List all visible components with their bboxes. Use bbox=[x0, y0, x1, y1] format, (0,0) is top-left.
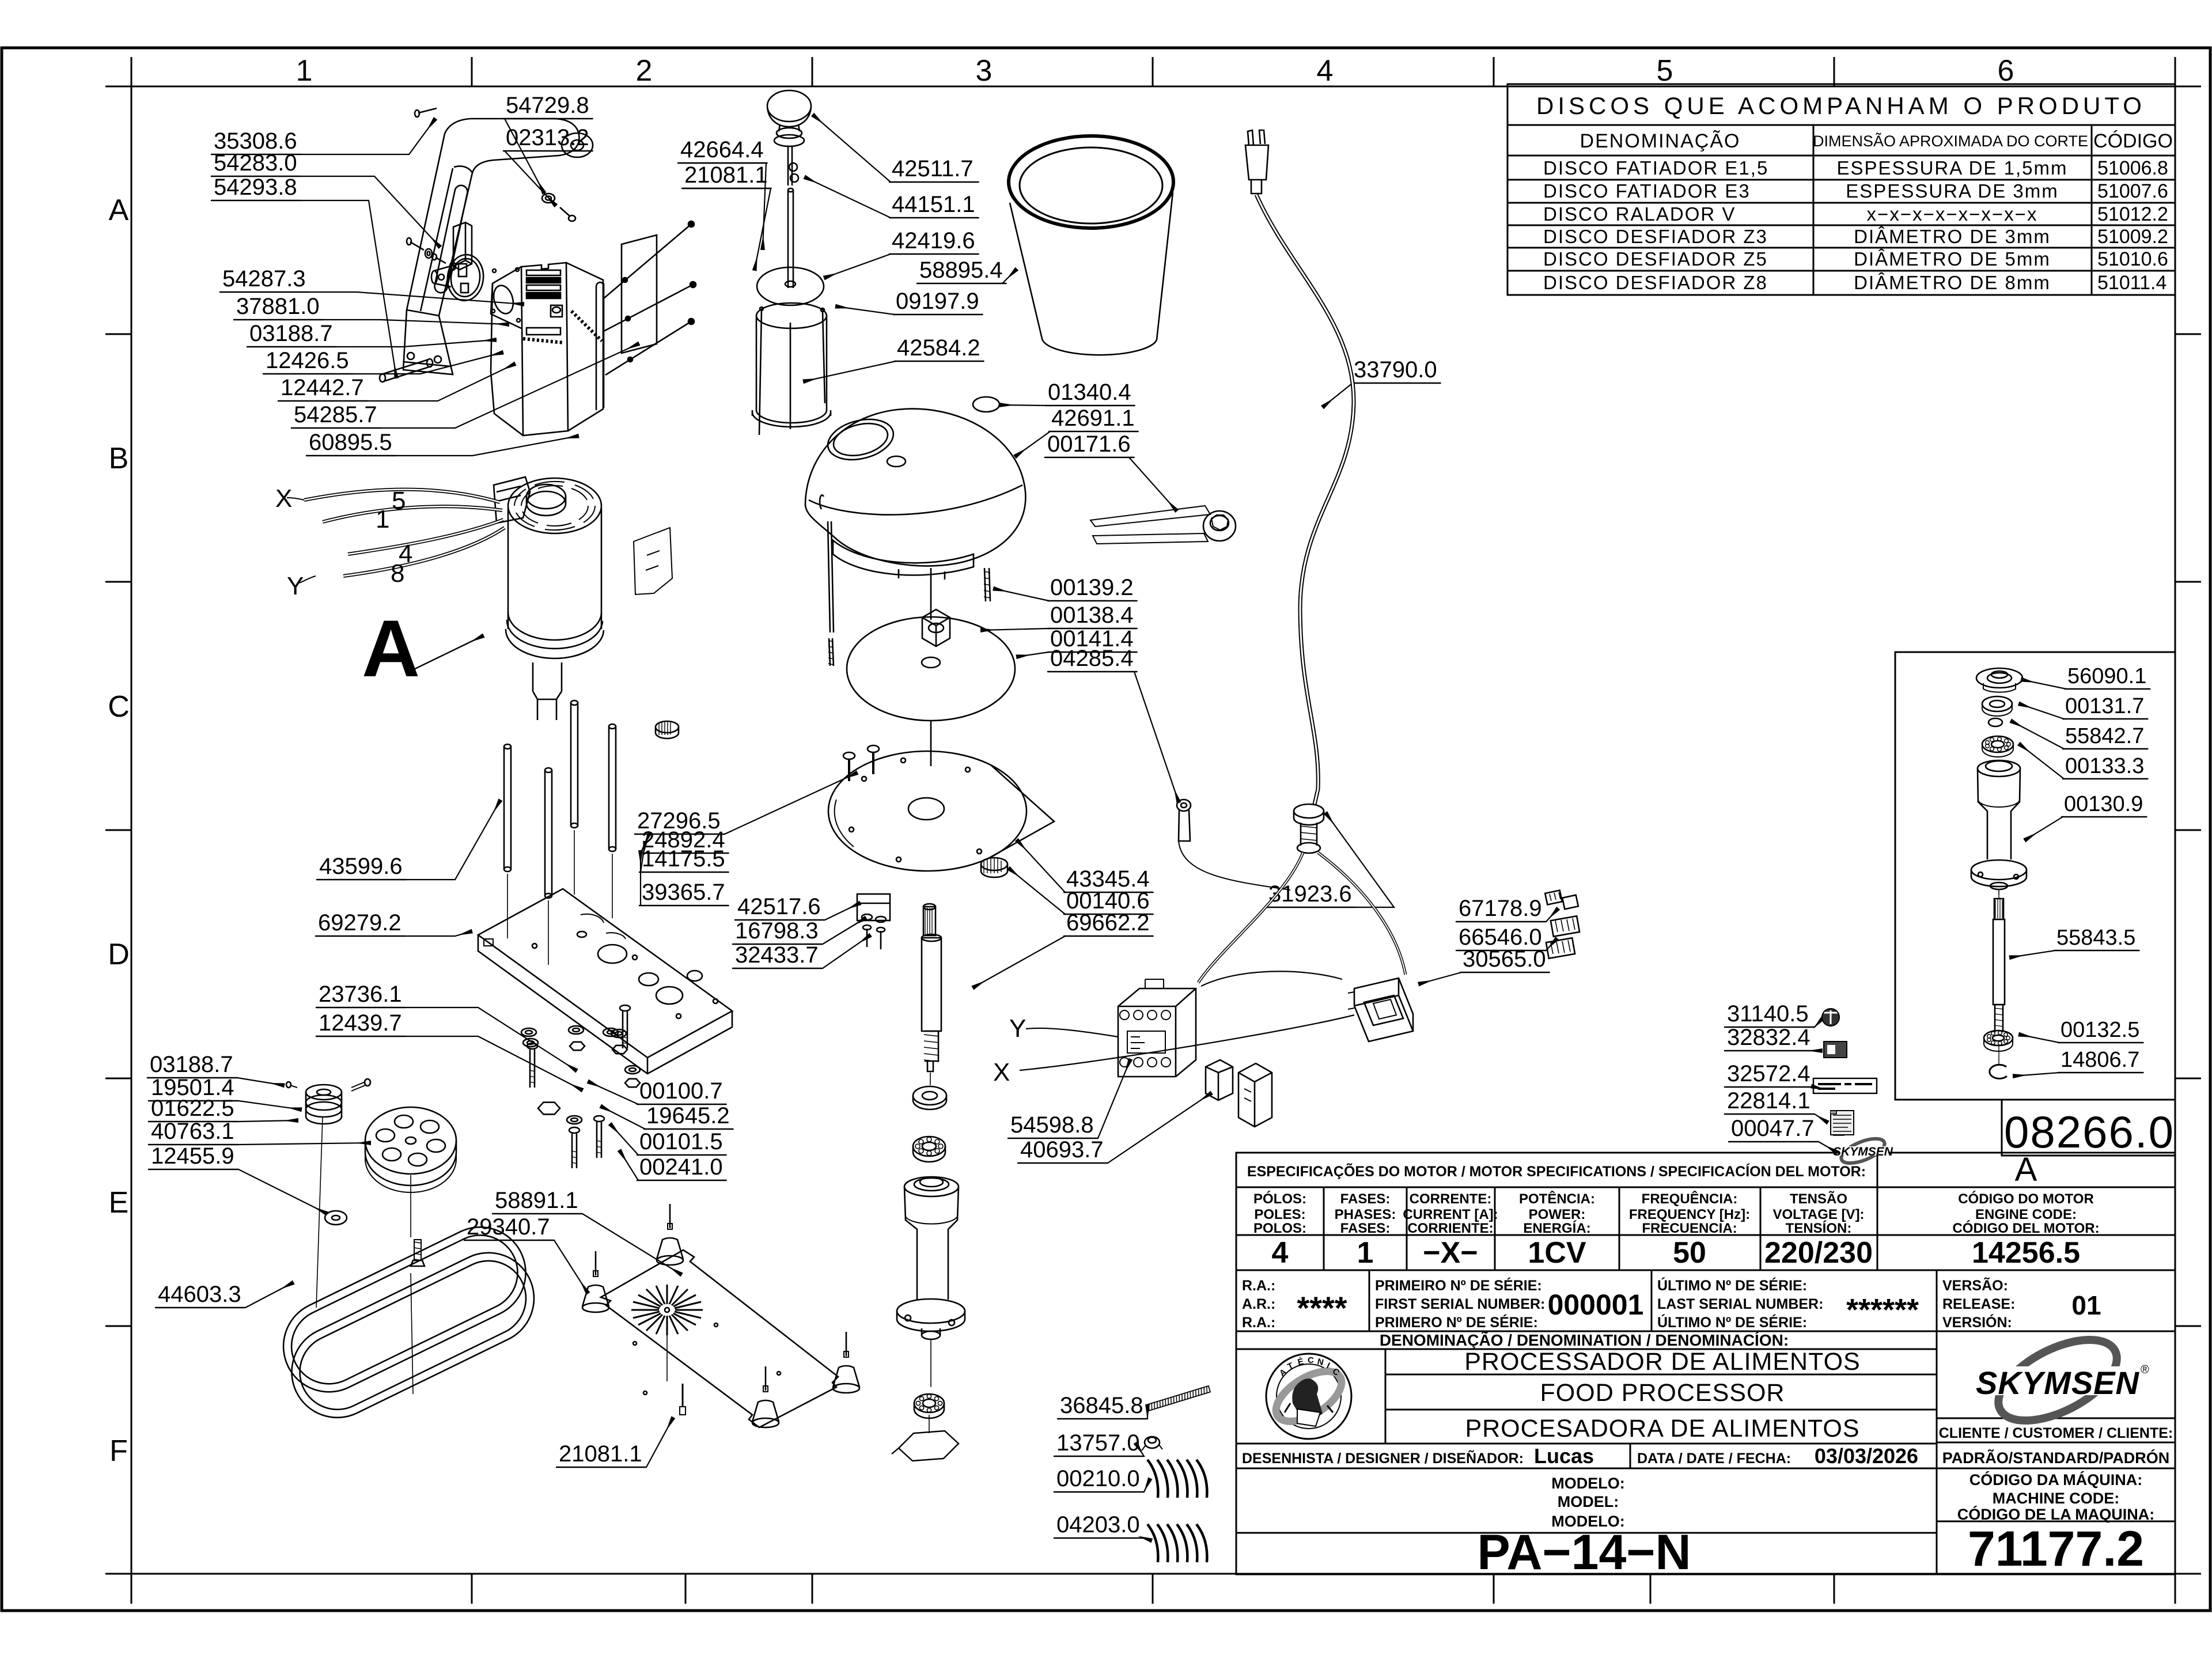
svg-text:FASES:: FASES: bbox=[1340, 1221, 1391, 1236]
svg-text:12455.9: 12455.9 bbox=[151, 1143, 234, 1169]
svg-text:14175.5: 14175.5 bbox=[642, 846, 725, 872]
svg-text:FRECUENCIA:: FRECUENCIA: bbox=[1642, 1221, 1737, 1236]
svg-text:51012.2: 51012.2 bbox=[2097, 203, 2168, 225]
svg-text:MODEL:: MODEL: bbox=[1558, 1493, 1619, 1510]
svg-text:F: F bbox=[109, 1434, 128, 1468]
svg-text:DIÂMETRO DE 8mm: DIÂMETRO DE 8mm bbox=[1854, 272, 2051, 293]
svg-text:56090.1: 56090.1 bbox=[2067, 664, 2146, 688]
svg-text:ESPESSURA DE 3mm: ESPESSURA DE 3mm bbox=[1846, 180, 2058, 202]
svg-text:Y: Y bbox=[287, 572, 304, 600]
svg-text:DISCO FATIADOR E1,5: DISCO FATIADOR E1,5 bbox=[1543, 157, 1768, 179]
svg-text:1: 1 bbox=[376, 505, 389, 533]
svg-text:55842.7: 55842.7 bbox=[2065, 724, 2144, 748]
svg-text:PROCESADORA DE ALIMENTOS: PROCESADORA DE ALIMENTOS bbox=[1465, 1415, 1859, 1442]
svg-text:01622.5: 01622.5 bbox=[151, 1096, 234, 1121]
svg-text:44603.3: 44603.3 bbox=[158, 1282, 241, 1307]
svg-text:69662.2: 69662.2 bbox=[1066, 910, 1150, 935]
svg-text:POWER:: POWER: bbox=[1529, 1207, 1586, 1222]
svg-text:DENOMINAÇÃO / DENOMINATION / D: DENOMINAÇÃO / DENOMINATION / DENOMINACÍO… bbox=[1380, 1331, 1789, 1349]
svg-text:ÚLTIMO Nº DE SÉRIE:: ÚLTIMO Nº DE SÉRIE: bbox=[1657, 1313, 1807, 1331]
svg-text:42419.6: 42419.6 bbox=[892, 228, 975, 253]
svg-text:40763.1: 40763.1 bbox=[151, 1119, 234, 1144]
svg-text:DESENHISTA / DESIGNER / DISEÑA: DESENHISTA / DESIGNER / DISEÑADOR: bbox=[1242, 1449, 1524, 1467]
svg-text:A: A bbox=[2015, 1151, 2037, 1188]
svg-text:POLOS:: POLOS: bbox=[1253, 1221, 1306, 1236]
svg-text:42511.7: 42511.7 bbox=[892, 156, 974, 181]
svg-text:12442.7: 12442.7 bbox=[281, 375, 364, 400]
svg-text:00101.5: 00101.5 bbox=[639, 1129, 723, 1154]
svg-text:33790.0: 33790.0 bbox=[1354, 357, 1437, 382]
svg-text:54729.8: 54729.8 bbox=[506, 93, 589, 118]
svg-text:54283.0: 54283.0 bbox=[214, 150, 297, 176]
svg-text:19645.2: 19645.2 bbox=[646, 1103, 730, 1128]
svg-text:SKYMSEN: SKYMSEN bbox=[1976, 1365, 2139, 1401]
svg-text:A.R.:: A.R.: bbox=[1242, 1296, 1275, 1312]
svg-text:12439.7: 12439.7 bbox=[319, 1010, 402, 1036]
svg-text:4: 4 bbox=[1272, 1236, 1289, 1270]
svg-text:5: 5 bbox=[392, 487, 406, 515]
svg-text:PRIMERO Nº DE SÉRIE:: PRIMERO Nº DE SÉRIE: bbox=[1375, 1314, 1538, 1331]
svg-text:12426.5: 12426.5 bbox=[266, 348, 349, 373]
svg-text:69279.2: 69279.2 bbox=[318, 910, 402, 935]
svg-text:51010.6: 51010.6 bbox=[2097, 248, 2168, 270]
svg-text:CÓDIGO DEL MOTOR:: CÓDIGO DEL MOTOR: bbox=[1952, 1220, 2099, 1236]
svg-text:32572.4: 32572.4 bbox=[1727, 1061, 1810, 1086]
svg-text:40693.7: 40693.7 bbox=[1020, 1137, 1104, 1162]
svg-text:44151.1: 44151.1 bbox=[892, 192, 975, 217]
svg-text:00138.4: 00138.4 bbox=[1050, 603, 1134, 628]
svg-text:ESPESSURA DE 1,5mm: ESPESSURA DE 1,5mm bbox=[1837, 157, 2068, 179]
svg-text:DIÂMETRO DE 5mm: DIÂMETRO DE 5mm bbox=[1854, 248, 2051, 270]
svg-text:00130.9: 00130.9 bbox=[2064, 792, 2143, 816]
svg-text:DISCO DESFIADOR Z8: DISCO DESFIADOR Z8 bbox=[1543, 272, 1768, 293]
svg-text:FASES:: FASES: bbox=[1340, 1191, 1391, 1207]
svg-text:FIRST SERIAL NUMBER:: FIRST SERIAL NUMBER: bbox=[1375, 1296, 1545, 1312]
svg-text:1CV: 1CV bbox=[1528, 1236, 1586, 1270]
svg-text:14806.7: 14806.7 bbox=[2061, 1048, 2139, 1072]
svg-text:71177.2: 71177.2 bbox=[1968, 1521, 2144, 1577]
svg-text:55843.5: 55843.5 bbox=[2056, 926, 2135, 950]
svg-text:42517.6: 42517.6 bbox=[737, 894, 821, 919]
svg-text:CÓDIGO: CÓDIGO bbox=[2093, 130, 2173, 152]
svg-text:LAST SERIAL NUMBER:: LAST SERIAL NUMBER: bbox=[1657, 1296, 1823, 1312]
svg-text:******: ****** bbox=[1846, 1293, 1919, 1327]
svg-text:B: B bbox=[109, 442, 129, 475]
svg-text:VERSÃO:: VERSÃO: bbox=[1942, 1277, 2008, 1294]
svg-text:DISCOS QUE ACOMPANHAM O PRODUT: DISCOS QUE ACOMPANHAM O PRODUTO bbox=[1536, 92, 2146, 119]
svg-text:39365.7: 39365.7 bbox=[642, 880, 725, 905]
svg-text:37881.0: 37881.0 bbox=[236, 294, 320, 319]
svg-text:TENSÍON:: TENSÍON: bbox=[1786, 1220, 1852, 1236]
svg-text:04285.4: 04285.4 bbox=[1050, 646, 1134, 671]
svg-text:CÓDIGO DE LA MAQUINA:: CÓDIGO DE LA MAQUINA: bbox=[1957, 1505, 2154, 1523]
svg-text:DIMENSÃO APROXIMADA DO CORTE: DIMENSÃO APROXIMADA DO CORTE bbox=[1813, 132, 2088, 150]
svg-text:50: 50 bbox=[1673, 1236, 1706, 1270]
svg-text:DIÂMETRO DE 3mm: DIÂMETRO DE 3mm bbox=[1854, 226, 2051, 247]
svg-text:03/03/2026: 03/03/2026 bbox=[1815, 1444, 1918, 1468]
svg-text:FREQUENCY [Hz]:: FREQUENCY [Hz]: bbox=[1629, 1207, 1750, 1222]
svg-text:8: 8 bbox=[391, 559, 404, 588]
svg-text:54285.7: 54285.7 bbox=[294, 402, 377, 427]
svg-text:03188.7: 03188.7 bbox=[249, 321, 333, 346]
svg-text:220/230: 220/230 bbox=[1764, 1236, 1873, 1270]
svg-text:POTÊNCIA:: POTÊNCIA: bbox=[1519, 1191, 1595, 1207]
svg-text:−X−: −X− bbox=[1423, 1236, 1478, 1270]
svg-text:A: A bbox=[109, 194, 129, 227]
svg-text:CURRENT [A]:: CURRENT [A]: bbox=[1403, 1207, 1498, 1222]
svg-text:ENGINE CODE:: ENGINE CODE: bbox=[1975, 1207, 2077, 1222]
svg-text:X: X bbox=[275, 484, 292, 513]
svg-text:CLIENTE / CUSTOMER / CLIENTE:: CLIENTE / CUSTOMER / CLIENTE: bbox=[1939, 1425, 2173, 1441]
svg-text:60895.5: 60895.5 bbox=[309, 430, 392, 455]
svg-text:43599.6: 43599.6 bbox=[319, 854, 403, 879]
svg-text:R.A.:: R.A.: bbox=[1242, 1278, 1275, 1294]
svg-text:E: E bbox=[109, 1186, 129, 1219]
svg-text:54287.3: 54287.3 bbox=[222, 266, 306, 291]
svg-text:CÓDIGO DO MOTOR: CÓDIGO DO MOTOR bbox=[1958, 1191, 2094, 1207]
svg-text:54293.8: 54293.8 bbox=[214, 175, 297, 200]
svg-text:67178.9: 67178.9 bbox=[1459, 896, 1542, 921]
svg-text:00132.5: 00132.5 bbox=[2061, 1018, 2139, 1042]
svg-text:PA−14−N: PA−14−N bbox=[1477, 1525, 1691, 1580]
svg-text:51006.8: 51006.8 bbox=[2097, 157, 2168, 179]
svg-text:36845.8: 36845.8 bbox=[1060, 1393, 1143, 1418]
svg-text:42664.4: 42664.4 bbox=[680, 137, 764, 162]
svg-text:®: ® bbox=[2141, 1363, 2149, 1376]
svg-text:PADRÃO/STANDARD/PADRÓN: PADRÃO/STANDARD/PADRÓN bbox=[1942, 1449, 2170, 1467]
svg-text:51011.4: 51011.4 bbox=[2097, 272, 2166, 294]
svg-text:00139.2: 00139.2 bbox=[1050, 575, 1134, 600]
svg-text:PÓLOS:: PÓLOS: bbox=[1253, 1191, 1306, 1207]
svg-text:FREQUÊNCIA:: FREQUÊNCIA: bbox=[1642, 1191, 1738, 1207]
svg-text:VERSIÓN:: VERSIÓN: bbox=[1942, 1313, 2012, 1331]
svg-text:x−x−x−x−x−x−x−x: x−x−x−x−x−x−x−x bbox=[1867, 203, 2038, 225]
svg-text:01: 01 bbox=[2071, 1290, 2101, 1320]
svg-text:23736.1: 23736.1 bbox=[319, 982, 402, 1007]
svg-text:1: 1 bbox=[1357, 1236, 1374, 1270]
svg-text:4: 4 bbox=[1317, 54, 1334, 88]
svg-text:POLES:: POLES: bbox=[1254, 1207, 1305, 1222]
svg-text:30565.0: 30565.0 bbox=[1463, 946, 1546, 972]
svg-text:09197.9: 09197.9 bbox=[896, 289, 979, 314]
svg-text:DISCO DESFIADOR Z3: DISCO DESFIADOR Z3 bbox=[1543, 226, 1768, 247]
svg-text:01340.4: 01340.4 bbox=[1048, 380, 1131, 405]
svg-text:42584.2: 42584.2 bbox=[897, 335, 980, 361]
svg-text:000001: 000001 bbox=[1548, 1289, 1644, 1321]
svg-text:16798.3: 16798.3 bbox=[735, 918, 819, 944]
svg-text:X: X bbox=[993, 1058, 1010, 1086]
svg-text:00100.7: 00100.7 bbox=[639, 1078, 723, 1104]
svg-text:FOOD PROCESSOR: FOOD PROCESSOR bbox=[1540, 1379, 1785, 1407]
svg-text:31923.6: 31923.6 bbox=[1268, 881, 1352, 907]
svg-text:PRIMEIRO Nº DE SÉRIE:: PRIMEIRO Nº DE SÉRIE: bbox=[1375, 1277, 1542, 1294]
svg-text:1: 1 bbox=[296, 54, 313, 88]
svg-text:DISCO DESFIADOR Z5: DISCO DESFIADOR Z5 bbox=[1543, 248, 1768, 270]
svg-text:03188.7: 03188.7 bbox=[150, 1052, 233, 1077]
svg-text:00133.3: 00133.3 bbox=[2065, 754, 2144, 778]
svg-text:DISCO RALADOR V: DISCO RALADOR V bbox=[1543, 203, 1736, 225]
svg-text:Y: Y bbox=[1009, 1014, 1026, 1043]
svg-text:51009.2: 51009.2 bbox=[2097, 226, 2168, 248]
svg-text:ÚLTIMO Nº DE SÉRIE:: ÚLTIMO Nº DE SÉRIE: bbox=[1657, 1277, 1807, 1294]
svg-text:DENOMINAÇÃO: DENOMINAÇÃO bbox=[1580, 130, 1741, 152]
svg-text:3: 3 bbox=[976, 54, 993, 88]
svg-text:CORRENTE:: CORRENTE: bbox=[1410, 1191, 1492, 1207]
svg-text:21081.1: 21081.1 bbox=[684, 162, 768, 188]
svg-text:32433.7: 32433.7 bbox=[735, 942, 819, 968]
svg-text:42691.1: 42691.1 bbox=[1051, 406, 1135, 431]
svg-text:VOLTAGE [V]:: VOLTAGE [V]: bbox=[1772, 1207, 1864, 1222]
svg-text:RELEASE:: RELEASE: bbox=[1942, 1296, 2015, 1312]
svg-text:CORRIENTE:: CORRIENTE: bbox=[1407, 1221, 1493, 1236]
svg-text:CÓDIGO DA MÁQUINA:: CÓDIGO DA MÁQUINA: bbox=[1969, 1471, 2142, 1488]
svg-text:32832.4: 32832.4 bbox=[1727, 1025, 1810, 1050]
svg-text:04203.0: 04203.0 bbox=[1056, 1512, 1140, 1537]
svg-text:00241.0: 00241.0 bbox=[639, 1154, 723, 1180]
svg-text:2: 2 bbox=[636, 54, 653, 88]
svg-text:SKYMSEN: SKYMSEN bbox=[1833, 1145, 1893, 1158]
svg-text:00047.7: 00047.7 bbox=[1731, 1116, 1815, 1141]
svg-text:58895.4: 58895.4 bbox=[919, 257, 1003, 283]
svg-text:PHASES:: PHASES: bbox=[1335, 1207, 1396, 1222]
svg-text:ENERGÍA:: ENERGÍA: bbox=[1523, 1220, 1590, 1236]
svg-text:51007.6: 51007.6 bbox=[2097, 180, 2168, 202]
svg-text:D: D bbox=[108, 938, 130, 971]
svg-text:MODELO:: MODELO: bbox=[1551, 1475, 1625, 1492]
svg-text:22814.1: 22814.1 bbox=[1727, 1088, 1810, 1113]
svg-text:ESPECIFICAÇÕES DO MOTOR / MOTO: ESPECIFICAÇÕES DO MOTOR / MOTOR SPECIFIC… bbox=[1247, 1162, 1866, 1180]
svg-text:00131.7: 00131.7 bbox=[2065, 694, 2144, 718]
svg-text:00210.0: 00210.0 bbox=[1056, 1466, 1140, 1491]
svg-text:DATA / DATE / FECHA:: DATA / DATE / FECHA: bbox=[1637, 1450, 1791, 1467]
svg-text:14256.5: 14256.5 bbox=[1972, 1236, 2080, 1270]
svg-text:DISCO FATIADOR E3: DISCO FATIADOR E3 bbox=[1543, 180, 1751, 202]
svg-text:C: C bbox=[1308, 1355, 1314, 1365]
svg-text:21081.1: 21081.1 bbox=[559, 1441, 642, 1467]
svg-text:A: A bbox=[362, 603, 420, 694]
svg-text:TENSÃO: TENSÃO bbox=[1790, 1191, 1847, 1207]
svg-text:PROCESSADOR DE ALIMENTOS: PROCESSADOR DE ALIMENTOS bbox=[1464, 1348, 1860, 1376]
svg-text:54598.8: 54598.8 bbox=[1010, 1112, 1094, 1138]
svg-text:C: C bbox=[108, 690, 130, 724]
svg-text:00171.6: 00171.6 bbox=[1047, 431, 1131, 457]
svg-text:Lucas: Lucas bbox=[1534, 1444, 1594, 1468]
svg-text:31140.5: 31140.5 bbox=[1727, 1001, 1809, 1027]
svg-text:58891.1: 58891.1 bbox=[495, 1188, 578, 1213]
svg-text:R.A.:: R.A.: bbox=[1242, 1315, 1275, 1331]
svg-text:5: 5 bbox=[1657, 54, 1673, 88]
svg-text:****: **** bbox=[1297, 1290, 1347, 1326]
svg-text:MACHINE CODE:: MACHINE CODE: bbox=[1993, 1490, 2120, 1507]
svg-text:13757.0: 13757.0 bbox=[1056, 1430, 1140, 1456]
svg-text:6: 6 bbox=[1998, 54, 2014, 88]
